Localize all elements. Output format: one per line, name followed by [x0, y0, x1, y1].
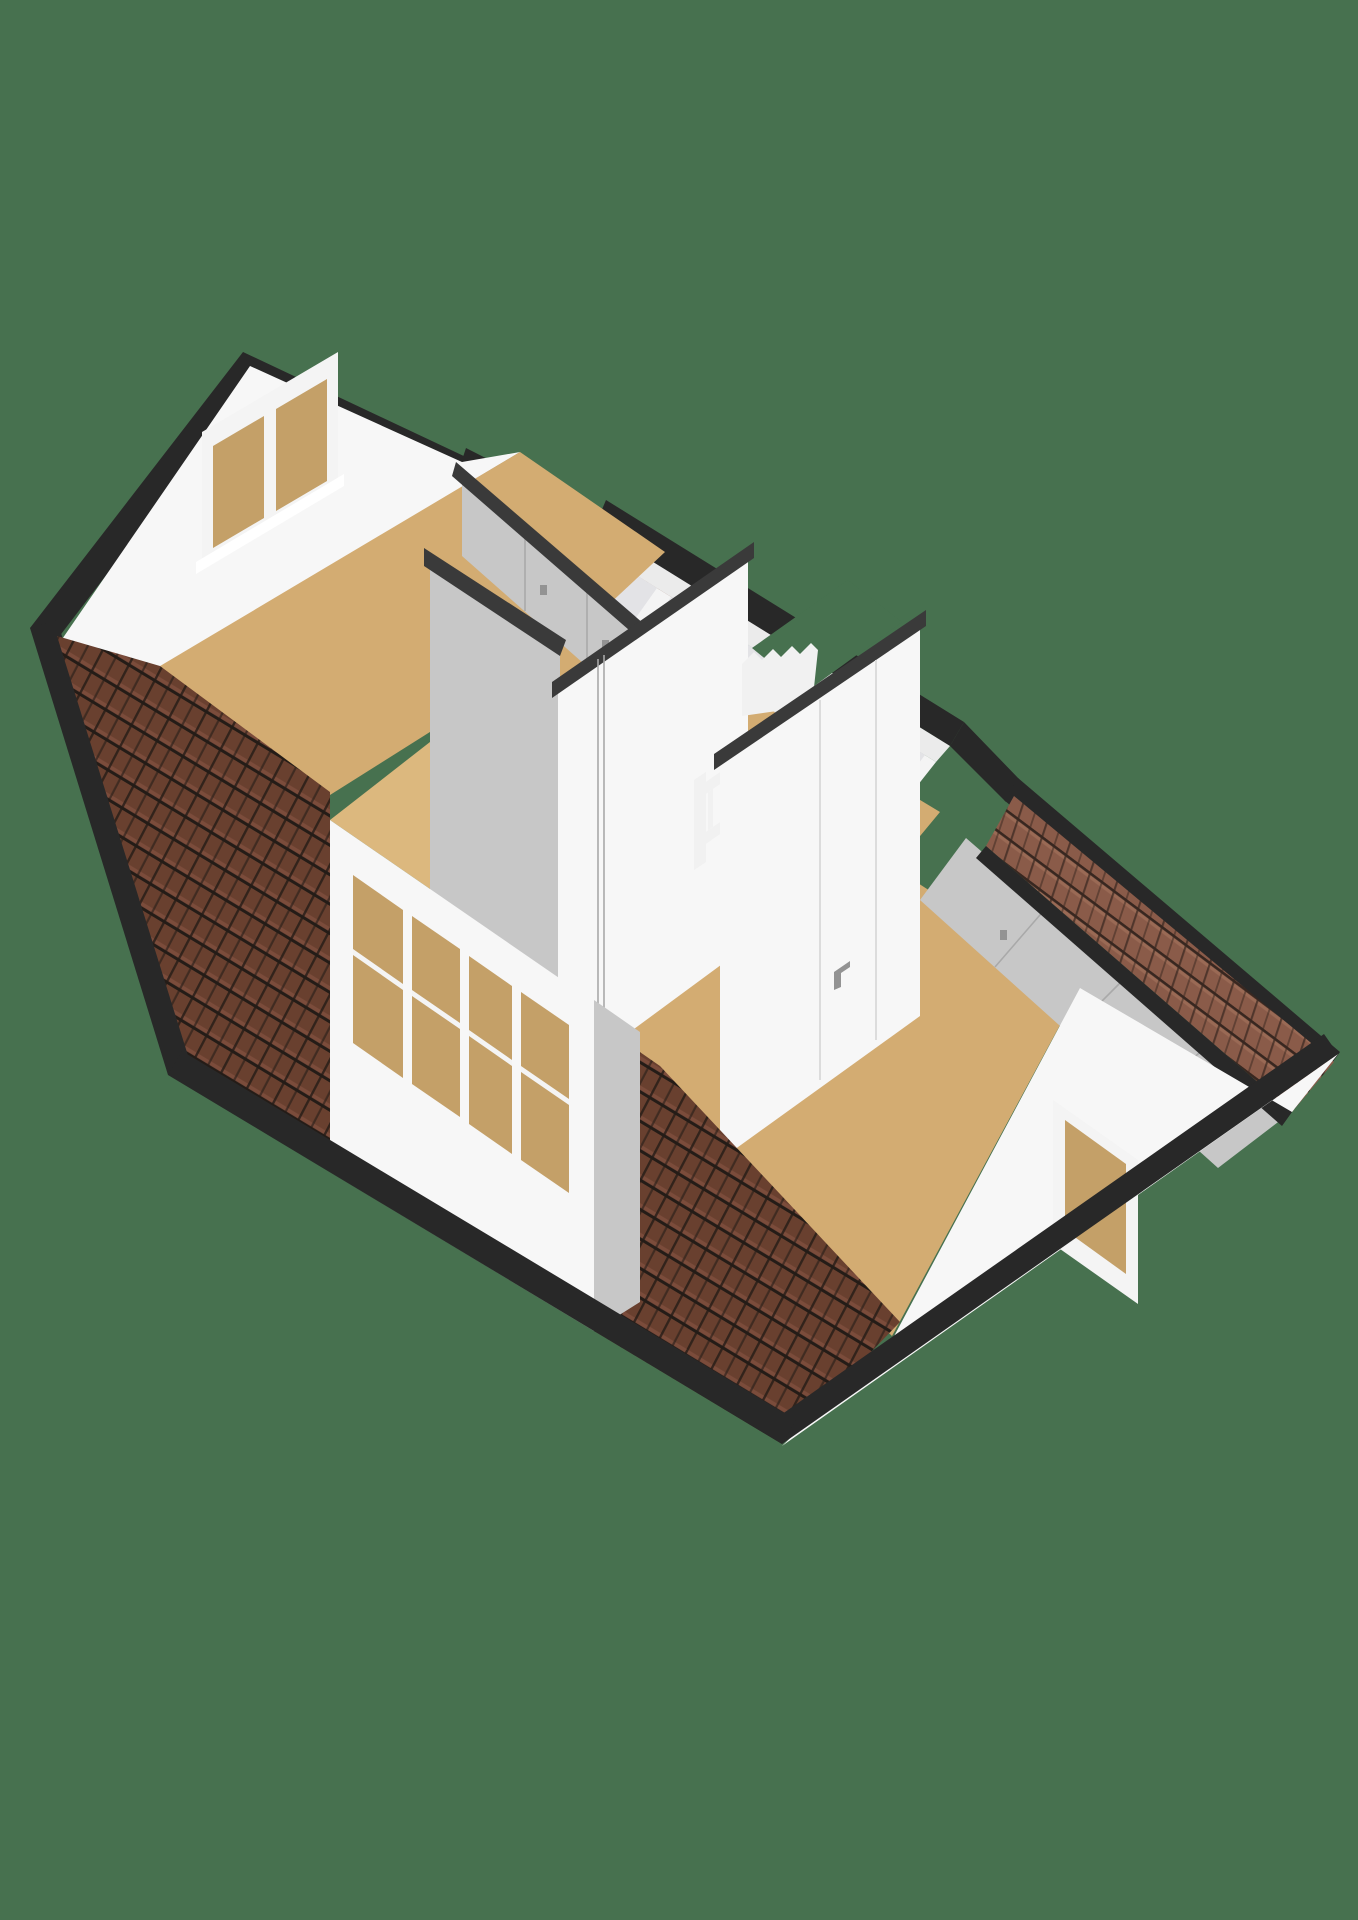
- window-pane: [412, 916, 460, 1117]
- floorplan-3d-render: [0, 0, 1358, 1920]
- window-pane: [469, 956, 512, 1154]
- closet-handle: [540, 585, 547, 595]
- window-pane: [353, 875, 403, 1078]
- dormer-return-wall: [594, 1000, 640, 1331]
- railing-post: [708, 789, 713, 831]
- window-pane: [521, 992, 569, 1193]
- closet-handle: [1000, 930, 1007, 940]
